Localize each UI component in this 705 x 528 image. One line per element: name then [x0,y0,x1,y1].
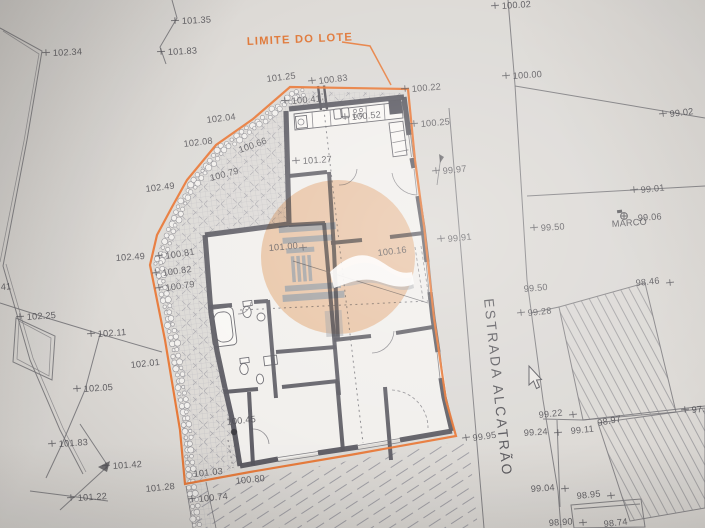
elevation-label: 102.34 [53,46,83,58]
elevation-label: 101.42 [112,459,142,471]
stone [182,428,188,434]
stone [195,173,199,177]
site-plan-photo: ESTRADA ALCATRÃO LIMITE DO LOTE 100.0210… [0,0,705,528]
stone [191,485,196,490]
elevation-label: 98.90 [548,516,573,528]
stone [159,292,164,297]
stone [168,335,173,340]
stone [185,195,191,201]
stone [184,402,190,408]
elevation-label: 99.24 [523,426,548,438]
stone [187,441,192,446]
stone [171,229,176,234]
stone [260,115,264,119]
elevation-label: 101.83 [58,437,88,449]
stone [173,334,178,339]
stone [253,127,256,130]
stone [161,246,165,250]
stone [272,110,278,116]
stone [186,467,191,472]
appliance [388,99,402,114]
stone [188,182,194,188]
stone [156,273,161,278]
survey-dot [231,429,237,435]
stone [176,217,182,223]
stone [181,423,186,428]
stone [172,360,177,365]
stone [166,227,170,231]
stone [183,397,188,402]
stone [175,385,181,391]
stone [179,366,183,370]
stone [167,310,172,315]
stone [159,261,163,265]
stone [175,373,179,377]
stone [154,262,157,265]
elevation-label: 101.27 [302,154,332,166]
stone [168,242,171,245]
stone [177,359,183,365]
stone [176,205,180,209]
elevation-label: 41 [0,281,11,292]
stone [214,147,220,153]
elevation-label: 98.74 [603,517,628,528]
stone [185,455,188,458]
stone [165,297,171,303]
site-plan-drawing: ESTRADA ALCATRÃO LIMITE DO LOTE 100.0210… [0,0,705,528]
elevation-label: 102.11 [97,327,126,339]
stone [247,130,251,134]
elevation-label: 101.22 [77,491,107,503]
stone [219,152,223,156]
stone [185,416,190,421]
stone [184,410,188,414]
stone [211,161,216,166]
elevation-label: 101.35 [182,14,212,26]
stone [168,304,172,308]
stone [215,156,220,161]
stone [203,171,207,175]
stone [171,354,175,358]
stone [176,353,181,358]
stone [237,137,243,143]
stone [174,340,180,346]
stone [164,322,170,328]
stone [186,472,192,478]
stone [175,348,179,352]
stone [182,391,186,395]
stone [191,504,195,508]
stone [205,165,211,171]
elevation-label: 100.00 [512,69,542,81]
stone [168,315,174,321]
stone [167,330,171,334]
stone [173,223,177,227]
elevation-label: 99.50 [523,282,548,294]
stone [263,119,268,124]
elevation-label: 97.7 [691,403,705,415]
stone [186,421,192,427]
stone [195,503,200,508]
stone [187,486,192,491]
stone [190,454,194,458]
stone [190,516,196,522]
stone [199,176,204,181]
stone [164,233,169,238]
stone [188,447,194,453]
stone [185,461,189,465]
stone [197,522,201,526]
elevation-label: 102.49 [115,251,145,263]
stone [163,305,166,308]
stone [178,398,182,402]
stone [184,436,188,440]
stone [196,517,200,521]
stone [230,138,233,141]
stone [169,235,175,241]
stone [178,198,184,204]
stone [190,460,195,465]
stone [256,121,262,127]
stone [294,90,298,94]
stone [188,190,193,195]
stone [171,323,175,327]
stone [178,211,183,216]
stone [245,126,249,130]
stone [266,112,269,115]
stone [179,404,184,409]
stone [179,378,185,384]
stone [195,180,201,186]
stone [173,366,179,372]
stone [194,509,200,515]
stone [180,372,185,377]
stone [181,207,185,211]
stone [226,144,231,149]
stone [189,435,193,439]
stone [212,153,216,157]
stone [277,106,282,111]
stone [242,133,247,138]
stone [233,142,237,146]
stone [282,102,286,106]
stone [301,89,304,92]
elevation-label: 101.83 [168,45,198,57]
stone [162,239,168,245]
stone [192,523,196,527]
elevation-label: 102.25 [26,310,56,322]
elevation-label: 102.05 [83,382,113,394]
elevation-label: 99.50 [540,221,565,233]
stone [174,210,179,215]
stone [178,392,182,396]
stone [194,186,198,190]
stone [189,429,192,432]
elevation-label: 99.04 [530,482,555,494]
stone [182,385,185,388]
stone [184,202,187,205]
stone [268,115,272,119]
stone [172,328,176,332]
